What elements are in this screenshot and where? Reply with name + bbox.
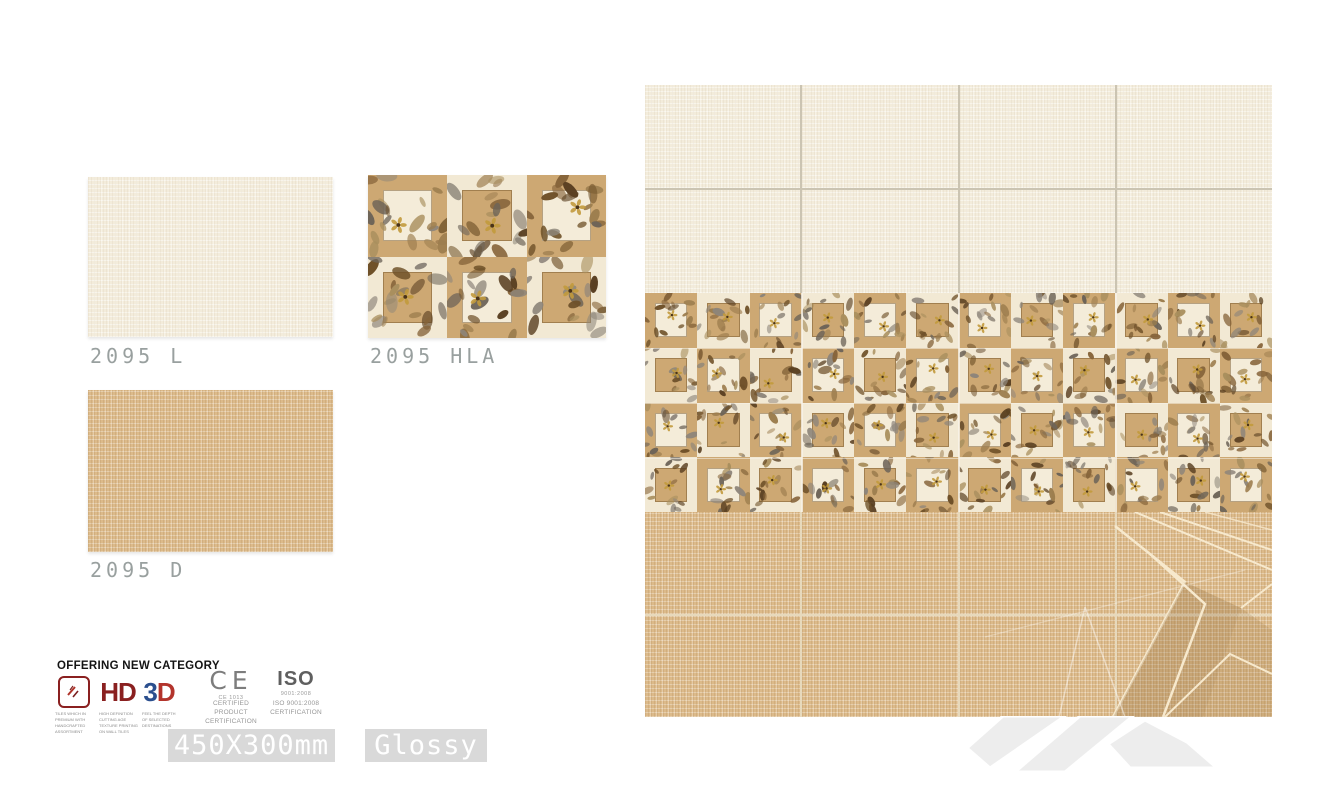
decor-square <box>959 348 1011 403</box>
wall-tile <box>960 512 1115 614</box>
grout-line <box>645 458 1272 459</box>
tile-sample-2095-d <box>88 390 333 552</box>
iso-code: 9001:2008 <box>270 691 322 697</box>
decor-square <box>1063 457 1115 512</box>
3d-icon: 3D <box>141 675 177 709</box>
wall-tile <box>1117 512 1272 614</box>
decor-square <box>1220 457 1272 512</box>
decor-square <box>906 348 958 403</box>
decor-square <box>854 348 906 403</box>
decor-square <box>906 403 958 458</box>
hd-icon-label: HD <box>100 677 136 708</box>
iso-description: ISO 9001:2008 CERTIFICATION <box>262 700 330 718</box>
decor-square <box>447 257 526 339</box>
decor-square <box>1115 348 1167 403</box>
tile-sample-2095-hla <box>368 175 606 338</box>
decor-square <box>1011 403 1063 458</box>
wall-tile <box>960 85 1115 188</box>
decor-square <box>1168 293 1220 348</box>
decor-square <box>1220 348 1272 403</box>
tile-label-2095-hla: 2095 HLA <box>370 344 498 368</box>
decor-square <box>1011 457 1063 512</box>
size-badge: 450X300mm <box>168 729 335 762</box>
wall-tile <box>1117 85 1272 188</box>
wall-tile <box>802 512 957 614</box>
finish-badge: Glossy <box>365 729 487 762</box>
decor-square <box>802 293 854 348</box>
decor-square <box>645 403 697 458</box>
decor-square <box>645 348 697 403</box>
decor-square <box>527 175 606 257</box>
tiles-icon-frame <box>58 676 90 708</box>
hd-icon-caption: HIGH DEFINITION CUTTING AGE TEXTURE PRIN… <box>99 711 139 735</box>
ce-mark-block: CE CE 1013 <box>205 666 257 701</box>
mockup-bottom-section <box>645 512 1272 717</box>
decor-square <box>854 403 906 458</box>
decor-square <box>645 457 697 512</box>
tiles-icon-caption: TILES WHICH IN PREMIUM WITH HANDCRAFTED … <box>55 711 95 735</box>
grout-line <box>645 403 1272 404</box>
decor-square <box>854 293 906 348</box>
decor-square <box>368 257 447 339</box>
ce-mark: CE <box>205 666 257 695</box>
decor-square <box>368 175 447 257</box>
decor-square <box>802 348 854 403</box>
decor-square <box>697 403 749 458</box>
decor-square <box>802 403 854 458</box>
tile-label-2095-l: 2095 L <box>90 344 186 368</box>
decor-square <box>750 457 802 512</box>
wall-tile <box>645 616 800 718</box>
decor-square <box>1115 457 1167 512</box>
wall-tile <box>1117 190 1272 293</box>
mockup-decor-band <box>645 293 1272 512</box>
decor-square <box>447 175 526 257</box>
decor-square <box>1168 348 1220 403</box>
wall-tile <box>645 190 800 293</box>
decor-square <box>697 457 749 512</box>
wall-tile <box>802 85 957 188</box>
decor-square <box>750 348 802 403</box>
decor-square <box>1063 348 1115 403</box>
3d-icon-caption: FEEL THE DEPTH OF SELECTED DESTINATIONS <box>142 711 182 729</box>
decor-square <box>1011 348 1063 403</box>
iso-mark-block: ISO 9001:2008 <box>270 668 322 697</box>
wall-tile <box>1117 616 1272 718</box>
decor-square <box>906 293 958 348</box>
wall-tile <box>802 616 957 718</box>
decor-square <box>1220 403 1272 458</box>
tiles-icon-glyph <box>64 682 84 702</box>
decor-square <box>1168 457 1220 512</box>
decor-square <box>959 293 1011 348</box>
decor-square <box>1063 293 1115 348</box>
decor-square <box>1168 403 1220 458</box>
decor-square <box>854 457 906 512</box>
hd-icon: HD <box>99 675 137 709</box>
decor-square <box>906 457 958 512</box>
decor-square <box>750 293 802 348</box>
decor-square <box>750 403 802 458</box>
decor-square <box>1115 403 1167 458</box>
decor-square <box>1011 293 1063 348</box>
category-section-title: OFFERING NEW CATEGORY <box>57 660 220 672</box>
wall-tile <box>645 85 800 188</box>
grout-line <box>645 348 1272 349</box>
ce-description: CERTIFIED PRODUCT CERTIFICATION <box>196 700 266 726</box>
decor-square <box>959 457 1011 512</box>
mockup-top-section <box>645 85 1272 293</box>
iso-mark: ISO <box>270 668 322 691</box>
wall-tile <box>802 190 957 293</box>
wall-mockup <box>645 85 1272 717</box>
decor-square <box>1063 403 1115 458</box>
watermark-shape <box>965 716 1255 778</box>
decor-square <box>1220 293 1272 348</box>
tile-sample-2095-l <box>88 177 333 337</box>
3d-icon-label: 3D <box>143 677 174 708</box>
decor-square <box>1115 293 1167 348</box>
wall-tile <box>960 190 1115 293</box>
tiles-icon <box>57 675 91 709</box>
decor-square <box>959 403 1011 458</box>
decor-square <box>527 257 606 339</box>
decor-square <box>802 457 854 512</box>
decor-square <box>645 293 697 348</box>
wall-tile <box>960 616 1115 718</box>
tile-label-2095-d: 2095 D <box>90 558 186 582</box>
decor-square <box>697 293 749 348</box>
wall-tile <box>645 512 800 614</box>
decor-square <box>697 348 749 403</box>
